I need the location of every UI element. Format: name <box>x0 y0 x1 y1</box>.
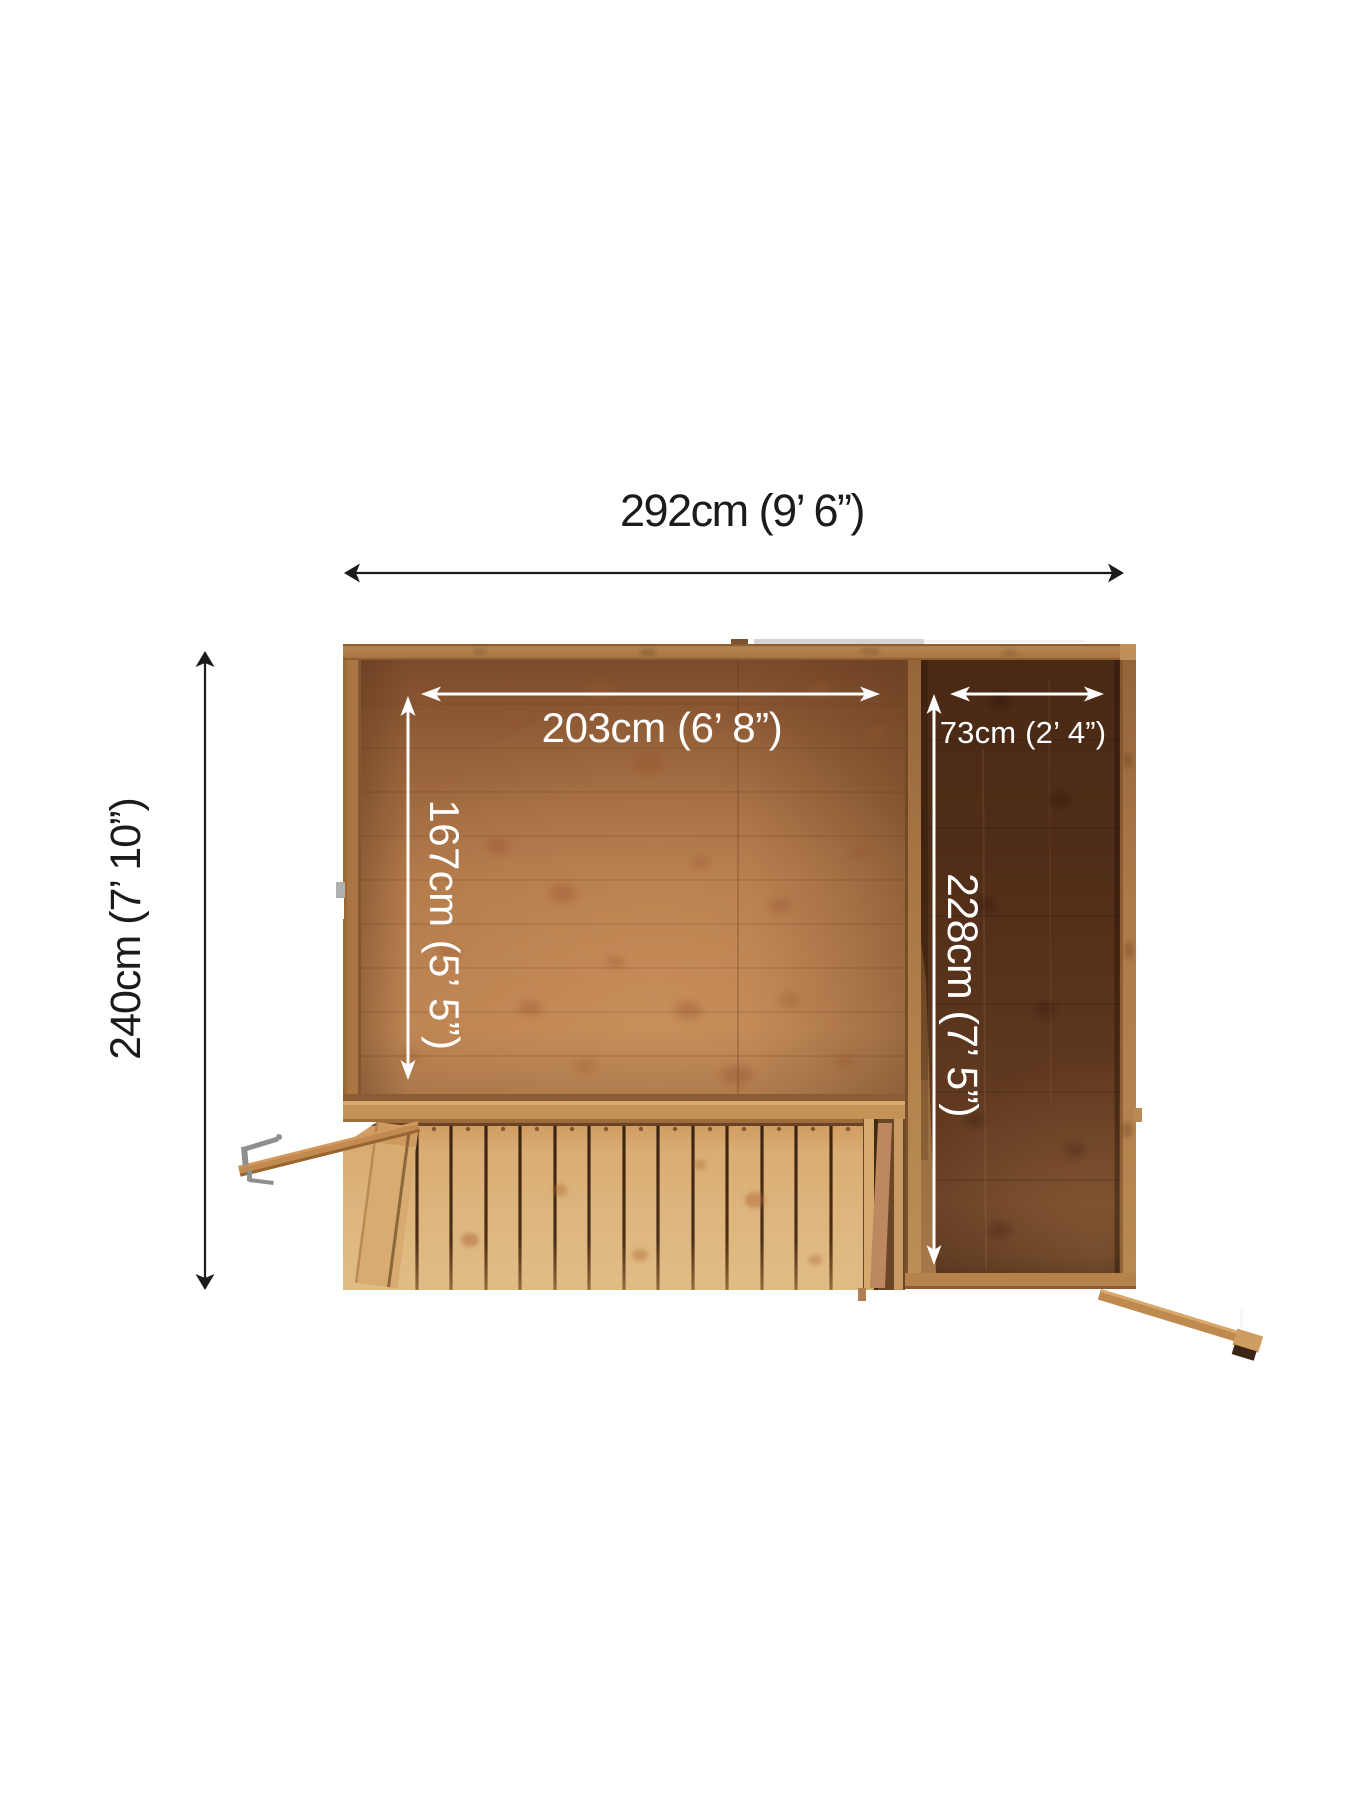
svg-text:240cm (7’ 10”): 240cm (7’ 10”) <box>102 798 150 1060</box>
svg-text:167cm (5’ 5”): 167cm (5’ 5”) <box>421 799 468 1050</box>
svg-text:292cm (9’ 6”): 292cm (9’ 6”) <box>620 485 864 536</box>
svg-text:203cm (6’ 8”): 203cm (6’ 8”) <box>542 704 783 751</box>
svg-text:73cm (2’ 4”): 73cm (2’ 4”) <box>940 715 1107 750</box>
svg-text:228cm (7’ 5”): 228cm (7’ 5”) <box>938 873 986 1117</box>
